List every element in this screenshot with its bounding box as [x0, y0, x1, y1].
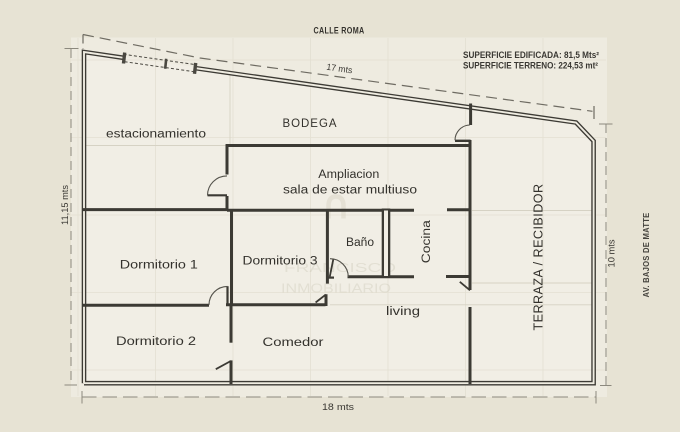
svg-text:BODEGA: BODEGA: [283, 118, 338, 130]
svg-text:Dormitorio 1: Dormitorio 1: [120, 259, 198, 271]
svg-text:Ampliacion: Ampliacion: [318, 169, 379, 181]
svg-text:TERRAZA / RECIBIDOR: TERRAZA / RECIBIDOR: [531, 184, 546, 331]
svg-text:Baño: Baño: [346, 237, 374, 249]
svg-text:AV. BAJOS DE MATTE: AV. BAJOS DE MATTE: [641, 212, 651, 297]
svg-text:estacionamiento: estacionamiento: [106, 129, 206, 141]
svg-text:Dormitorio 3: Dormitorio 3: [243, 256, 318, 268]
svg-text:Dormitorio 2: Dormitorio 2: [116, 336, 196, 348]
svg-text:Comedor: Comedor: [263, 337, 324, 349]
svg-text:SUPERFICIE TERRENO: 224,53 mt²: SUPERFICIE TERRENO: 224,53 mt²: [463, 61, 598, 71]
svg-text:CALLE ROMA: CALLE ROMA: [314, 26, 365, 36]
svg-text:11,15 mts: 11,15 mts: [60, 184, 70, 225]
svg-text:INMOBILIARIO: INMOBILIARIO: [281, 282, 391, 296]
svg-text:Cocina: Cocina: [421, 219, 433, 263]
svg-text:SUPERFICIE EDIFICADA: 81,5 Mts: SUPERFICIE EDIFICADA: 81,5 Mts²: [463, 50, 599, 60]
svg-text:18 mts: 18 mts: [322, 402, 355, 412]
svg-text:sala de estar multiuso: sala de estar multiuso: [283, 185, 417, 197]
svg-text:10 mts: 10 mts: [607, 239, 617, 268]
svg-text:living: living: [386, 306, 420, 318]
